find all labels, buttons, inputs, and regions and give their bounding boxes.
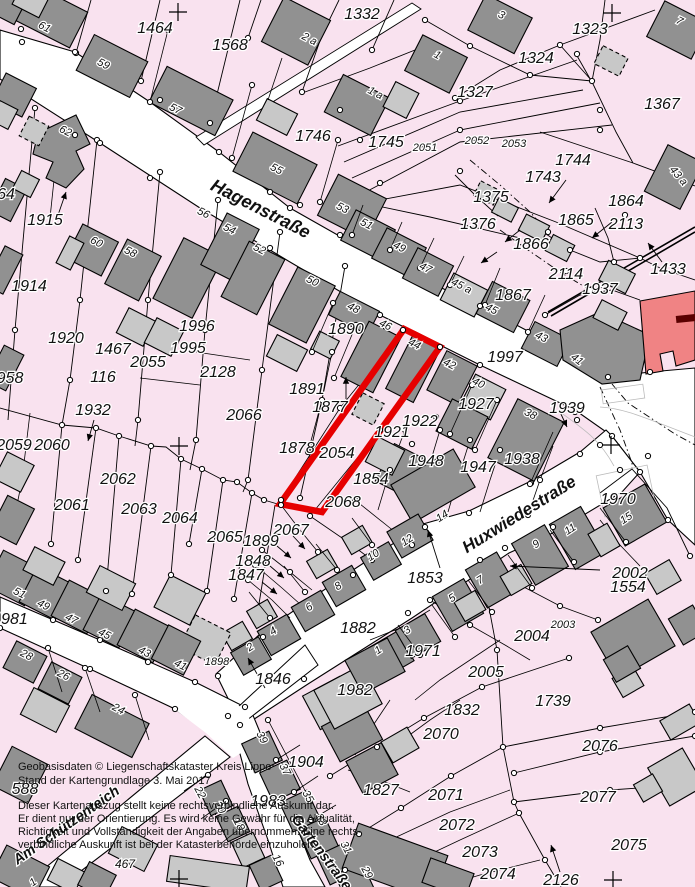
svg-text:2068: 2068 (324, 494, 361, 511)
svg-text:1899: 1899 (243, 533, 279, 550)
svg-text:1995: 1995 (170, 340, 206, 357)
svg-text:1882: 1882 (340, 620, 376, 637)
svg-text:2073: 2073 (461, 844, 498, 861)
svg-text:1982: 1982 (337, 682, 373, 699)
svg-text:116: 116 (90, 369, 116, 386)
svg-text:1827: 1827 (363, 782, 400, 799)
svg-text:2075: 2075 (610, 837, 647, 854)
svg-text:1568: 1568 (212, 37, 248, 54)
svg-text:1878: 1878 (279, 440, 315, 457)
svg-text:verbindliche Auskunft ist bei: verbindliche Auskunft ist bei der Katast… (18, 839, 316, 851)
svg-text:1898: 1898 (205, 656, 230, 668)
svg-text:1890: 1890 (328, 321, 364, 338)
svg-text:467: 467 (115, 857, 136, 871)
svg-text:1853: 1853 (407, 570, 443, 587)
svg-text:1927: 1927 (458, 396, 495, 413)
svg-text:1864: 1864 (608, 193, 644, 210)
svg-text:2004: 2004 (513, 628, 550, 645)
svg-text:2054: 2054 (318, 445, 355, 462)
svg-text:1464: 1464 (137, 20, 173, 37)
svg-text:2062: 2062 (99, 471, 136, 488)
svg-text:1554: 1554 (610, 579, 646, 596)
svg-text:2061: 2061 (53, 497, 90, 514)
svg-text:Stand der Kartengrundlage 3. M: Stand der Kartengrundlage 3. Mai 2017 (18, 775, 211, 787)
svg-text:1367: 1367 (644, 96, 681, 113)
svg-text:958: 958 (0, 370, 23, 387)
svg-text:2055: 2055 (129, 354, 166, 371)
svg-text:1376: 1376 (460, 216, 496, 233)
svg-text:2072: 2072 (438, 817, 475, 834)
svg-text:2060: 2060 (33, 437, 70, 454)
svg-text:1891: 1891 (289, 381, 325, 398)
svg-text:1847: 1847 (228, 567, 265, 584)
svg-text:1937: 1937 (582, 281, 619, 298)
svg-text:1948: 1948 (408, 453, 444, 470)
svg-text:1865: 1865 (558, 212, 594, 229)
svg-text:1467: 1467 (95, 341, 132, 358)
svg-text:1939: 1939 (549, 400, 585, 417)
svg-text:2063: 2063 (120, 501, 157, 518)
svg-text:1746: 1746 (295, 128, 331, 145)
svg-text:Geobasisdaten © Liegenschaftsk: Geobasisdaten © Liegenschaftskataster Kr… (18, 761, 271, 773)
svg-text:1996: 1996 (179, 318, 215, 335)
svg-text:1971: 1971 (405, 643, 441, 660)
svg-text:1739: 1739 (535, 693, 571, 710)
svg-text:1938: 1938 (504, 451, 540, 468)
svg-text:1743: 1743 (525, 169, 561, 186)
svg-text:2066: 2066 (225, 407, 262, 424)
svg-text:2005: 2005 (467, 664, 504, 681)
svg-text:2053: 2053 (501, 138, 527, 150)
svg-text:1832: 1832 (444, 702, 480, 719)
svg-text:64: 64 (0, 186, 15, 203)
svg-text:1433: 1433 (650, 261, 686, 278)
svg-text:1846: 1846 (255, 671, 291, 688)
svg-text:1997: 1997 (487, 349, 524, 366)
svg-text:1970: 1970 (600, 491, 636, 508)
svg-text:1947: 1947 (460, 459, 497, 476)
svg-text:1981: 1981 (0, 611, 28, 628)
svg-text:1323: 1323 (572, 21, 608, 38)
svg-text:1332: 1332 (344, 6, 380, 23)
svg-text:1922: 1922 (402, 413, 438, 430)
svg-text:1324: 1324 (518, 50, 554, 67)
svg-text:2052: 2052 (464, 135, 489, 147)
svg-text:2113: 2113 (608, 216, 644, 233)
svg-text:1327: 1327 (457, 84, 494, 101)
svg-text:1745: 1745 (368, 134, 404, 151)
svg-text:Dieser Kartenauszug stellt kei: Dieser Kartenauszug stellt keine rechtsv… (18, 800, 334, 812)
svg-text:2076: 2076 (581, 738, 618, 755)
svg-text:1920: 1920 (48, 330, 84, 347)
svg-text:1932: 1932 (75, 402, 111, 419)
svg-text:1866: 1866 (513, 236, 549, 253)
svg-text:1915: 1915 (27, 212, 63, 229)
svg-text:2077: 2077 (579, 789, 617, 806)
svg-text:2003: 2003 (550, 619, 576, 631)
svg-text:2065: 2065 (206, 529, 243, 546)
svg-text:1877: 1877 (312, 399, 349, 416)
svg-text:2051: 2051 (412, 142, 437, 154)
svg-text:1867: 1867 (495, 287, 532, 304)
svg-text:Er dient nur der Orientierung.: Er dient nur der Orientierung. Es wird k… (18, 813, 355, 825)
svg-text:2059: 2059 (0, 437, 32, 454)
svg-text:2126: 2126 (542, 872, 579, 887)
svg-text:2074: 2074 (479, 866, 516, 883)
svg-text:1904: 1904 (288, 754, 324, 771)
svg-text:2070: 2070 (422, 726, 459, 743)
svg-text:Richtigkeit und Vollständigkei: Richtigkeit und Vollständigkeit der Anga… (18, 826, 362, 838)
svg-text:1914: 1914 (11, 278, 47, 295)
svg-text:2071: 2071 (427, 787, 464, 804)
svg-text:1854: 1854 (353, 471, 389, 488)
svg-text:2114: 2114 (548, 266, 584, 283)
svg-text:2128: 2128 (199, 364, 236, 381)
svg-text:1375: 1375 (473, 189, 509, 206)
svg-text:1744: 1744 (555, 152, 591, 169)
svg-text:2064: 2064 (161, 510, 198, 527)
